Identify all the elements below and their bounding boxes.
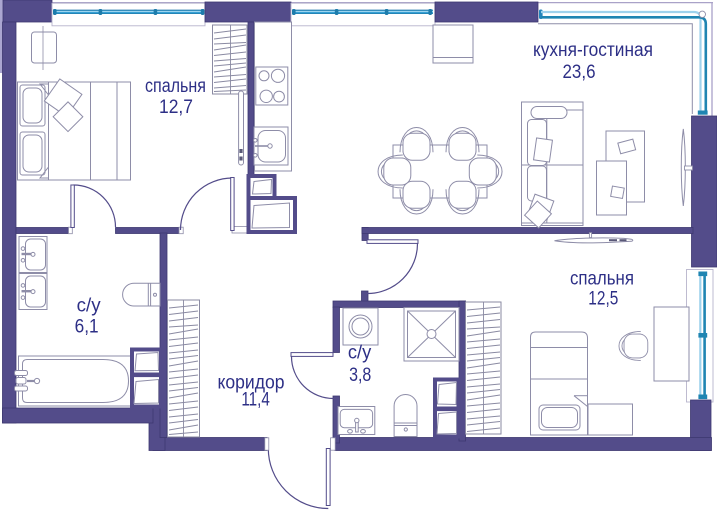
svg-text:кухня-гостиная: кухня-гостиная — [533, 40, 653, 61]
svg-text:спальня: спальня — [145, 76, 206, 97]
svg-text:12,5: 12,5 — [588, 289, 618, 310]
svg-text:6,1: 6,1 — [75, 316, 99, 337]
svg-text:23,6: 23,6 — [563, 62, 596, 83]
svg-text:12,7: 12,7 — [159, 97, 193, 118]
svg-text:11,4: 11,4 — [241, 390, 270, 411]
svg-text:с/у: с/у — [77, 296, 101, 317]
svg-text:3,8: 3,8 — [349, 365, 371, 386]
svg-text:спальня: спальня — [570, 269, 634, 290]
svg-text:с/у: с/у — [348, 343, 372, 364]
